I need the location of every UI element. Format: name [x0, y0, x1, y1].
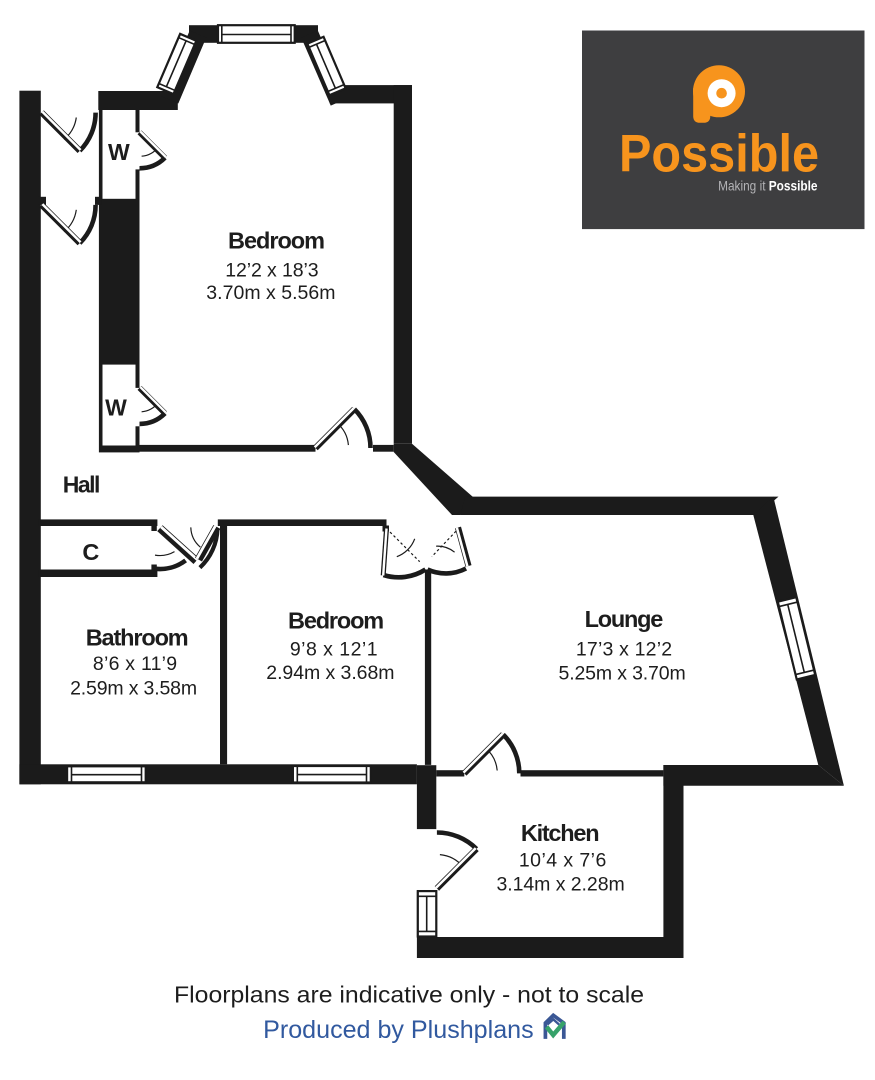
- svg-text:Kitchen: Kitchen: [521, 820, 600, 846]
- svg-text:W: W: [108, 139, 130, 165]
- svg-text:10’4 x 7’6: 10’4 x 7’6: [519, 849, 606, 871]
- svg-text:Bedroom: Bedroom: [288, 607, 384, 633]
- svg-text:Floorplans are indicative only: Floorplans are indicative only - not to …: [174, 982, 644, 1008]
- svg-text:Bathroom: Bathroom: [86, 625, 189, 651]
- svg-text:17’3 x 12’2: 17’3 x 12’2: [576, 638, 672, 660]
- svg-text:3.14m x 2.28m: 3.14m x 2.28m: [496, 874, 624, 896]
- svg-text:5.25m x 3.70m: 5.25m x 3.70m: [559, 663, 686, 685]
- svg-text:Hall: Hall: [63, 472, 101, 498]
- svg-text:Produced by Plushplans: Produced by Plushplans: [263, 1016, 534, 1044]
- svg-text:2.94m x 3.68m: 2.94m x 3.68m: [266, 662, 394, 684]
- svg-text:3.70m x 5.56m: 3.70m x 5.56m: [206, 282, 335, 304]
- svg-text:Bedroom: Bedroom: [228, 228, 325, 254]
- svg-text:W: W: [105, 394, 127, 420]
- svg-text:Making it Possible: Making it Possible: [718, 179, 818, 194]
- svg-text:8’6 x 11’9: 8’6 x 11’9: [93, 653, 177, 675]
- svg-text:12’2 x 18’3: 12’2 x 18’3: [225, 260, 318, 282]
- svg-text:Lounge: Lounge: [585, 606, 664, 632]
- svg-text:C: C: [82, 539, 99, 565]
- svg-text:Possible: Possible: [619, 125, 819, 184]
- svg-text:9’8 x 12’1: 9’8 x 12’1: [290, 639, 378, 661]
- svg-text:2.59m x 3.58m: 2.59m x 3.58m: [70, 677, 197, 699]
